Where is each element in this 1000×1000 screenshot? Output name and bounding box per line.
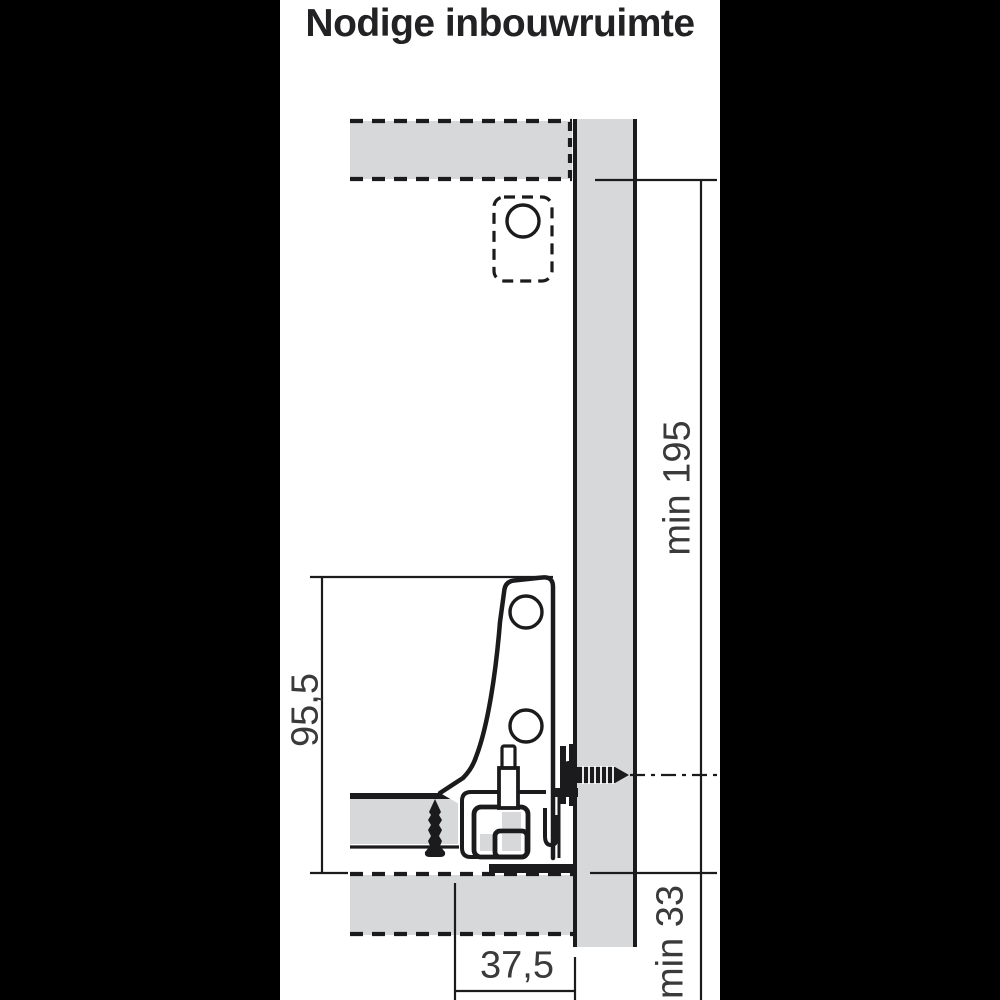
dim-label-back-offset: 37,5 <box>480 945 554 988</box>
drawer-bottom-panel <box>350 796 459 847</box>
figure-canvas: Nodige inbouwruimte <box>0 0 1000 1000</box>
cabinet-bottom-panel <box>350 874 573 935</box>
front-fixing-hole-marker <box>494 197 552 281</box>
dim-label-cabinet-inner-height: min 195 <box>657 420 700 555</box>
dim-label-drawer-side-height: 95,5 <box>285 673 328 747</box>
installation-diagram <box>280 0 720 1000</box>
coupling-pin <box>499 746 518 808</box>
diagram-sheet: Nodige inbouwruimte <box>280 0 720 1000</box>
cabinet-side-panel <box>575 119 635 947</box>
cabinet-top-panel <box>350 121 572 179</box>
dim-label-bottom-clearance: min 33 <box>650 885 693 999</box>
